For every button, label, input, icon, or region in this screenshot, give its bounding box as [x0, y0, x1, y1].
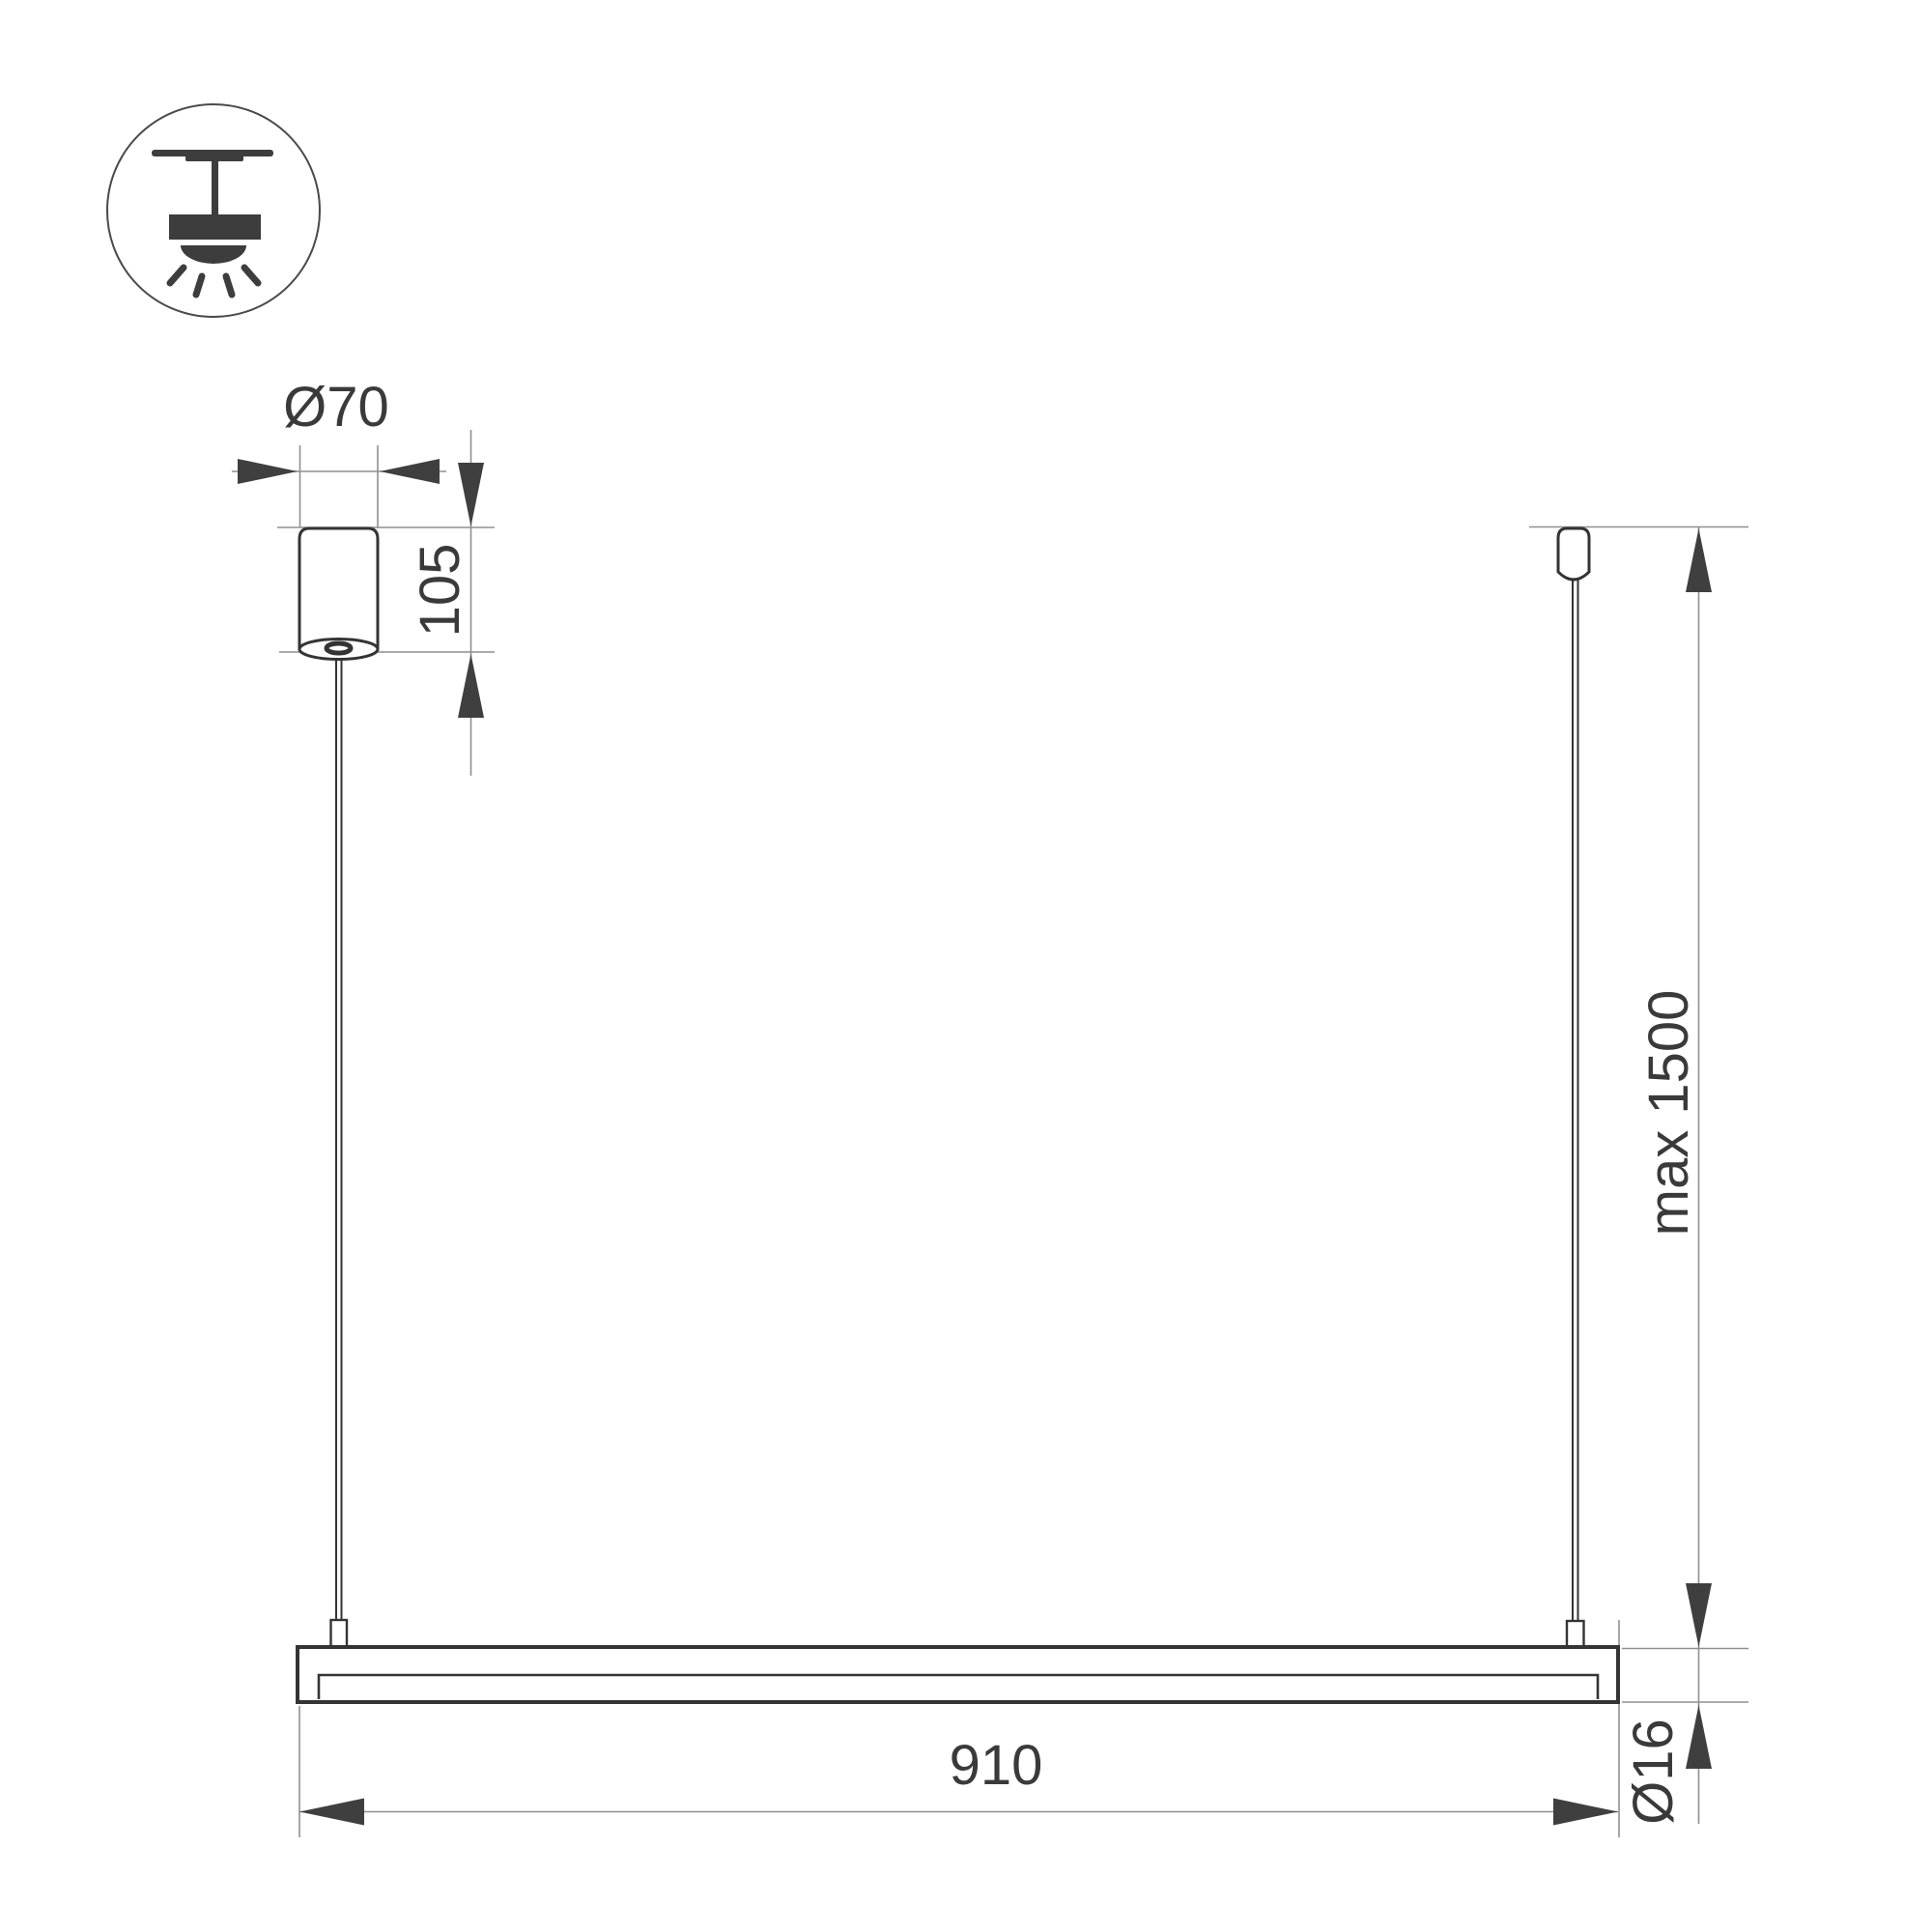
- ceiling-mount-icon: [107, 104, 320, 317]
- max-height-label: max 1500: [1637, 990, 1700, 1236]
- suspension-left: [299, 528, 378, 1648]
- arrow-up-icon: [458, 654, 484, 718]
- cable-gland: [327, 643, 351, 653]
- technical-drawing: Ø70 105 910 max 1500 Ø16: [0, 0, 1932, 1932]
- light-bar: [298, 1647, 1618, 1702]
- canopy-small: [1558, 528, 1589, 580]
- arrow-right-icon: [1553, 1799, 1618, 1826]
- arrow-up-icon: [1686, 1705, 1712, 1769]
- icon-stem: [212, 158, 218, 216]
- icon-lamp-body: [169, 214, 261, 240]
- wire-holder-right: [1567, 1621, 1584, 1648]
- canopy-cylinder: [299, 528, 378, 650]
- pendant-light-dimension-drawing: Ø70 105 910 max 1500 Ø16: [0, 0, 1932, 1932]
- arrow-down-icon: [458, 463, 484, 526]
- dimension-max-height: max 1500: [1637, 528, 1712, 1647]
- arrow-left-icon: [380, 459, 440, 484]
- arrow-up-icon: [1686, 528, 1712, 592]
- suspension-right: [1558, 528, 1589, 1648]
- wire-holder-left: [331, 1620, 348, 1648]
- extension-lines: [232, 430, 1748, 1837]
- bar-diameter-label: Ø16: [1622, 1719, 1685, 1825]
- canopy-diameter-label: Ø70: [283, 376, 389, 439]
- arrow-down-icon: [1686, 1583, 1712, 1647]
- dimension-canopy-diameter: Ø70: [238, 376, 440, 484]
- arrow-left-icon: [299, 1799, 364, 1826]
- arrow-right-icon: [238, 459, 298, 484]
- bar-length-label: 910: [950, 1734, 1043, 1797]
- canopy-height-label: 105: [409, 544, 471, 638]
- dimension-canopy-height: 105: [409, 463, 484, 718]
